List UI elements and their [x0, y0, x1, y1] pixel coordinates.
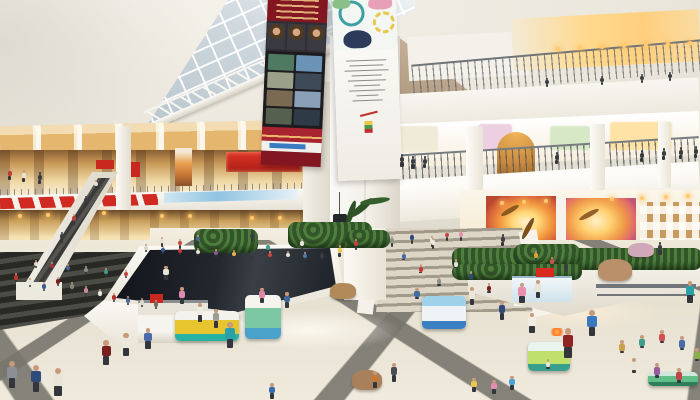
- banner-text-line: [353, 99, 383, 102]
- person-legs: [145, 341, 150, 349]
- person: [518, 283, 525, 303]
- banner-photo-thumb: [296, 55, 323, 72]
- person: [14, 273, 18, 284]
- person-legs: [227, 339, 234, 348]
- person: [640, 74, 643, 83]
- banner-white-artwork: [332, 0, 398, 51]
- person-torso: [402, 254, 406, 259]
- person-torso: [640, 153, 644, 158]
- person-legs: [640, 158, 643, 162]
- person-legs: [601, 82, 603, 85]
- downlight: [556, 47, 560, 51]
- downlight: [544, 199, 548, 203]
- person: [225, 322, 234, 348]
- person-torso: [535, 284, 541, 292]
- person-legs: [67, 270, 70, 271]
- person-legs: [536, 292, 541, 298]
- person: [196, 235, 200, 245]
- downlight: [278, 216, 282, 220]
- plush-ride: [598, 259, 632, 281]
- person: [84, 266, 88, 276]
- banner-photo-thumb: [295, 73, 322, 90]
- person-legs: [260, 298, 264, 303]
- person-legs: [123, 348, 129, 356]
- person: [437, 276, 442, 289]
- banner-photo-thumb: [294, 91, 321, 108]
- person: [354, 239, 358, 250]
- person-legs: [400, 162, 403, 167]
- plush-ride: [330, 283, 356, 299]
- person: [266, 243, 270, 254]
- person-torso: [679, 150, 683, 155]
- person-torso: [419, 267, 423, 272]
- person: [22, 170, 26, 182]
- person-head: [146, 328, 151, 333]
- person-legs: [103, 356, 109, 365]
- person-legs: [641, 80, 643, 83]
- person-torso: [469, 274, 473, 279]
- person: [600, 76, 603, 85]
- downlight: [640, 196, 644, 200]
- person-torso: [259, 291, 264, 297]
- person: [300, 239, 304, 250]
- person-legs: [127, 303, 130, 305]
- person-legs: [546, 84, 548, 87]
- person: [214, 249, 218, 259]
- person-legs: [437, 284, 440, 286]
- person: [459, 230, 463, 241]
- banner-portrait: [267, 23, 286, 50]
- person-legs: [680, 348, 685, 351]
- person-legs: [71, 289, 74, 291]
- ride-accent: [648, 382, 698, 386]
- person: [124, 270, 128, 280]
- person-legs: [551, 264, 554, 266]
- person: [56, 277, 60, 288]
- person-torso: [31, 371, 41, 382]
- downlight: [500, 201, 504, 205]
- person-torso: [528, 317, 535, 325]
- person: [639, 335, 645, 352]
- person-torso: [284, 296, 290, 303]
- person: [534, 251, 538, 262]
- person: [213, 309, 220, 328]
- person-legs: [411, 240, 414, 244]
- person: [163, 266, 168, 280]
- person: [98, 289, 102, 300]
- person-legs: [8, 176, 11, 180]
- person-legs: [251, 238, 254, 242]
- banner-portrait: [287, 24, 306, 51]
- banner-text-line: [352, 74, 382, 77]
- person-torso: [8, 171, 12, 176]
- person: [686, 281, 694, 303]
- person-head: [270, 383, 274, 387]
- person-legs: [85, 293, 88, 295]
- person-legs: [33, 382, 40, 392]
- person: [70, 282, 74, 293]
- plush-ride: [628, 243, 654, 257]
- person-legs: [391, 243, 394, 247]
- banner-white-logo: [364, 121, 372, 133]
- person-torso: [423, 159, 427, 164]
- hedge: [194, 229, 258, 253]
- person: [431, 238, 435, 249]
- person-legs: [43, 289, 46, 291]
- person: [28, 278, 32, 289]
- person: [491, 380, 496, 394]
- banner-red-sponsor-strip: [261, 141, 321, 154]
- person-legs: [510, 385, 514, 390]
- freezer-sign: [536, 268, 554, 277]
- person-legs: [695, 359, 699, 361]
- person-legs: [564, 347, 572, 358]
- person-legs: [589, 327, 596, 336]
- person: [112, 293, 116, 304]
- banner-text-line: [354, 84, 380, 86]
- person-legs: [662, 156, 665, 160]
- person-legs: [145, 250, 148, 251]
- person-torso: [7, 367, 17, 378]
- downlight: [600, 45, 604, 49]
- person: [391, 363, 398, 382]
- person-legs: [125, 276, 128, 277]
- person: [53, 368, 63, 396]
- person: [284, 292, 290, 308]
- ride-body: [245, 308, 281, 328]
- ride-accent: [422, 321, 466, 329]
- person-legs: [454, 267, 457, 269]
- person-legs: [301, 246, 304, 250]
- person-legs: [161, 243, 164, 247]
- person-head: [565, 328, 572, 335]
- person: [197, 303, 204, 322]
- person: [7, 361, 17, 388]
- person-torso: [659, 334, 665, 341]
- person: [501, 234, 505, 246]
- person: [140, 298, 144, 309]
- person-legs: [655, 375, 660, 378]
- person: [160, 237, 164, 247]
- ride-roof: [422, 296, 466, 306]
- person: [250, 232, 254, 242]
- person-legs: [304, 258, 307, 259]
- artwork-green-patch: [332, 0, 350, 9]
- person-legs: [446, 237, 449, 241]
- person-legs: [29, 285, 32, 287]
- person-legs: [251, 256, 254, 257]
- downlight: [644, 43, 648, 47]
- person: [469, 287, 475, 305]
- person-legs: [197, 254, 200, 255]
- banner-text-line: [346, 59, 386, 62]
- person-legs: [373, 382, 377, 388]
- person: [178, 239, 182, 249]
- downlight: [188, 214, 192, 218]
- person-torso: [197, 307, 204, 315]
- person: [545, 78, 548, 87]
- person-legs: [669, 78, 671, 81]
- person-legs: [546, 367, 549, 369]
- banner-photo-thumb: [293, 109, 320, 126]
- person-legs: [51, 268, 54, 269]
- person: [471, 378, 476, 392]
- person-torso: [679, 340, 685, 348]
- person: [509, 376, 514, 390]
- mezzanine-poster: [175, 148, 192, 186]
- person: [676, 368, 683, 387]
- person-legs: [321, 258, 324, 259]
- person: [232, 250, 236, 260]
- person-legs: [269, 257, 272, 258]
- person-legs: [677, 380, 682, 383]
- person: [419, 264, 423, 276]
- person-legs: [285, 302, 289, 308]
- person: [658, 242, 663, 255]
- person-legs: [197, 241, 200, 245]
- person: [619, 340, 625, 357]
- person-legs: [469, 279, 472, 281]
- person-legs: [198, 315, 203, 322]
- person-head: [227, 322, 233, 328]
- person-legs: [99, 296, 102, 298]
- person: [631, 358, 638, 377]
- artwork-yellow-ring: [372, 11, 395, 34]
- banner-photo-thumb: [265, 108, 292, 125]
- person: [564, 263, 568, 274]
- person: [499, 301, 506, 320]
- person-torso: [555, 155, 559, 160]
- person-legs: [472, 387, 476, 392]
- banner-photo-thumb: [267, 72, 294, 89]
- downlight: [666, 42, 670, 46]
- person-legs: [214, 321, 219, 328]
- artwork-navy-blob: [343, 30, 372, 49]
- downlight: [250, 216, 254, 220]
- banner-text-line: [356, 94, 378, 96]
- event-banner-red: [261, 0, 328, 167]
- person-torso: [676, 372, 683, 380]
- person: [102, 340, 111, 365]
- person-torso: [179, 291, 185, 298]
- person-legs: [73, 221, 76, 225]
- person: [487, 283, 492, 296]
- banner-red-headline-block: [267, 0, 328, 23]
- person-torso: [631, 362, 638, 370]
- banner-white-text-block: [334, 49, 400, 102]
- person: [400, 154, 405, 167]
- person-legs: [9, 378, 16, 388]
- speaker-cable: [339, 192, 340, 216]
- banner-photo-thumb: [268, 54, 295, 71]
- person: [411, 156, 416, 169]
- person: [320, 252, 324, 262]
- person-torso: [225, 328, 234, 339]
- person-torso: [338, 248, 342, 253]
- person: [528, 313, 535, 333]
- banner-photo-thumb: [266, 90, 293, 107]
- person-legs: [501, 242, 504, 246]
- person-torso: [518, 287, 525, 295]
- person-torso: [53, 374, 63, 386]
- person-legs: [565, 270, 568, 272]
- person-legs: [233, 256, 236, 257]
- bench-railing: [596, 284, 696, 288]
- person: [555, 152, 559, 164]
- person-legs: [95, 186, 98, 190]
- escalator-sign: [96, 160, 114, 169]
- kiddie-car-blue: [422, 296, 466, 329]
- ride-body: [422, 306, 466, 321]
- downlight: [610, 197, 614, 201]
- person-torso: [499, 305, 506, 313]
- person: [31, 365, 41, 392]
- person-legs: [162, 252, 165, 253]
- person-head: [103, 340, 109, 346]
- person-torso: [587, 316, 596, 327]
- person: [196, 248, 200, 258]
- person: [668, 72, 671, 81]
- person: [259, 288, 264, 303]
- person: [38, 172, 42, 184]
- person-legs: [35, 266, 38, 267]
- person-head: [589, 310, 595, 316]
- person-legs: [658, 250, 661, 255]
- person-torso: [563, 335, 574, 348]
- person: [694, 348, 700, 365]
- person-legs: [432, 245, 435, 249]
- person: [144, 328, 152, 349]
- person-legs: [22, 178, 25, 182]
- banner-text-line: [345, 69, 389, 72]
- person-legs: [660, 341, 664, 343]
- person-legs: [492, 389, 496, 394]
- person-torso: [694, 352, 700, 359]
- person-torso: [22, 173, 26, 178]
- person: [269, 383, 275, 399]
- event-banner-white: [332, 0, 402, 181]
- ride-accent: [245, 328, 281, 339]
- person: [84, 286, 88, 297]
- person-legs: [694, 154, 697, 158]
- person: [587, 310, 596, 336]
- person-legs: [620, 351, 624, 353]
- person-torso: [639, 339, 645, 346]
- person-legs: [402, 259, 405, 261]
- downlight: [46, 213, 50, 217]
- person-legs: [54, 386, 61, 396]
- person: [662, 148, 666, 160]
- person-legs: [555, 160, 558, 164]
- person: [654, 363, 661, 382]
- person-torso: [686, 286, 694, 295]
- banner-text-line: [349, 64, 383, 67]
- person-legs: [85, 203, 88, 207]
- person-legs: [470, 299, 475, 305]
- person-torso: [213, 313, 220, 321]
- person-legs: [460, 237, 463, 241]
- person-legs: [679, 155, 682, 159]
- person: [250, 250, 254, 260]
- person: [535, 280, 541, 298]
- person-legs: [38, 180, 41, 184]
- person-legs: [640, 346, 644, 348]
- person: [659, 330, 665, 347]
- person-legs: [423, 164, 426, 168]
- person-legs: [105, 274, 108, 275]
- person-torso: [654, 367, 661, 375]
- banner-white-signature: [358, 103, 378, 117]
- person: [104, 268, 108, 278]
- person: [72, 214, 76, 225]
- person: [694, 146, 698, 158]
- person-torso: [38, 175, 42, 180]
- person-legs: [415, 297, 419, 299]
- person: [303, 252, 307, 262]
- banner-red-portraits: [266, 21, 327, 54]
- person-legs: [85, 272, 88, 273]
- person: [34, 260, 38, 270]
- person: [161, 246, 165, 256]
- person: [550, 257, 554, 268]
- person: [410, 233, 414, 244]
- person: [469, 271, 473, 283]
- person-legs: [267, 250, 270, 254]
- downlight: [622, 44, 626, 48]
- person-legs: [687, 295, 693, 303]
- person-legs: [215, 255, 218, 256]
- column-right-b: [590, 124, 605, 192]
- person: [402, 251, 406, 263]
- person: [66, 264, 70, 274]
- mall-atrium-photo: [0, 0, 700, 400]
- person-legs: [270, 393, 274, 399]
- person-legs: [519, 296, 524, 303]
- person-torso: [501, 237, 505, 242]
- person-legs: [529, 326, 534, 333]
- person-legs: [15, 280, 18, 282]
- person-torso: [102, 346, 111, 357]
- person-torso: [662, 151, 666, 156]
- hedge: [346, 230, 390, 248]
- person-head: [285, 292, 289, 296]
- person-legs: [287, 257, 290, 258]
- downlight: [522, 200, 526, 204]
- person-torso: [454, 262, 458, 267]
- person-torso: [469, 291, 475, 299]
- person-legs: [392, 375, 397, 382]
- banner-portrait: [307, 24, 326, 51]
- person: [338, 245, 342, 257]
- person-legs: [338, 253, 341, 257]
- person-legs: [113, 300, 116, 302]
- person: [154, 300, 158, 311]
- person: [60, 232, 64, 243]
- person: [126, 296, 130, 307]
- person-torso: [619, 344, 625, 351]
- person: [94, 180, 98, 190]
- person-legs: [487, 291, 490, 293]
- person-legs: [155, 307, 158, 309]
- person-torso: [694, 149, 698, 154]
- person-legs: [411, 164, 414, 169]
- person: [372, 371, 378, 388]
- person: [8, 168, 12, 180]
- person-torso: [144, 333, 152, 342]
- person-legs: [535, 258, 538, 260]
- person-torso: [372, 375, 378, 382]
- person: [50, 262, 54, 272]
